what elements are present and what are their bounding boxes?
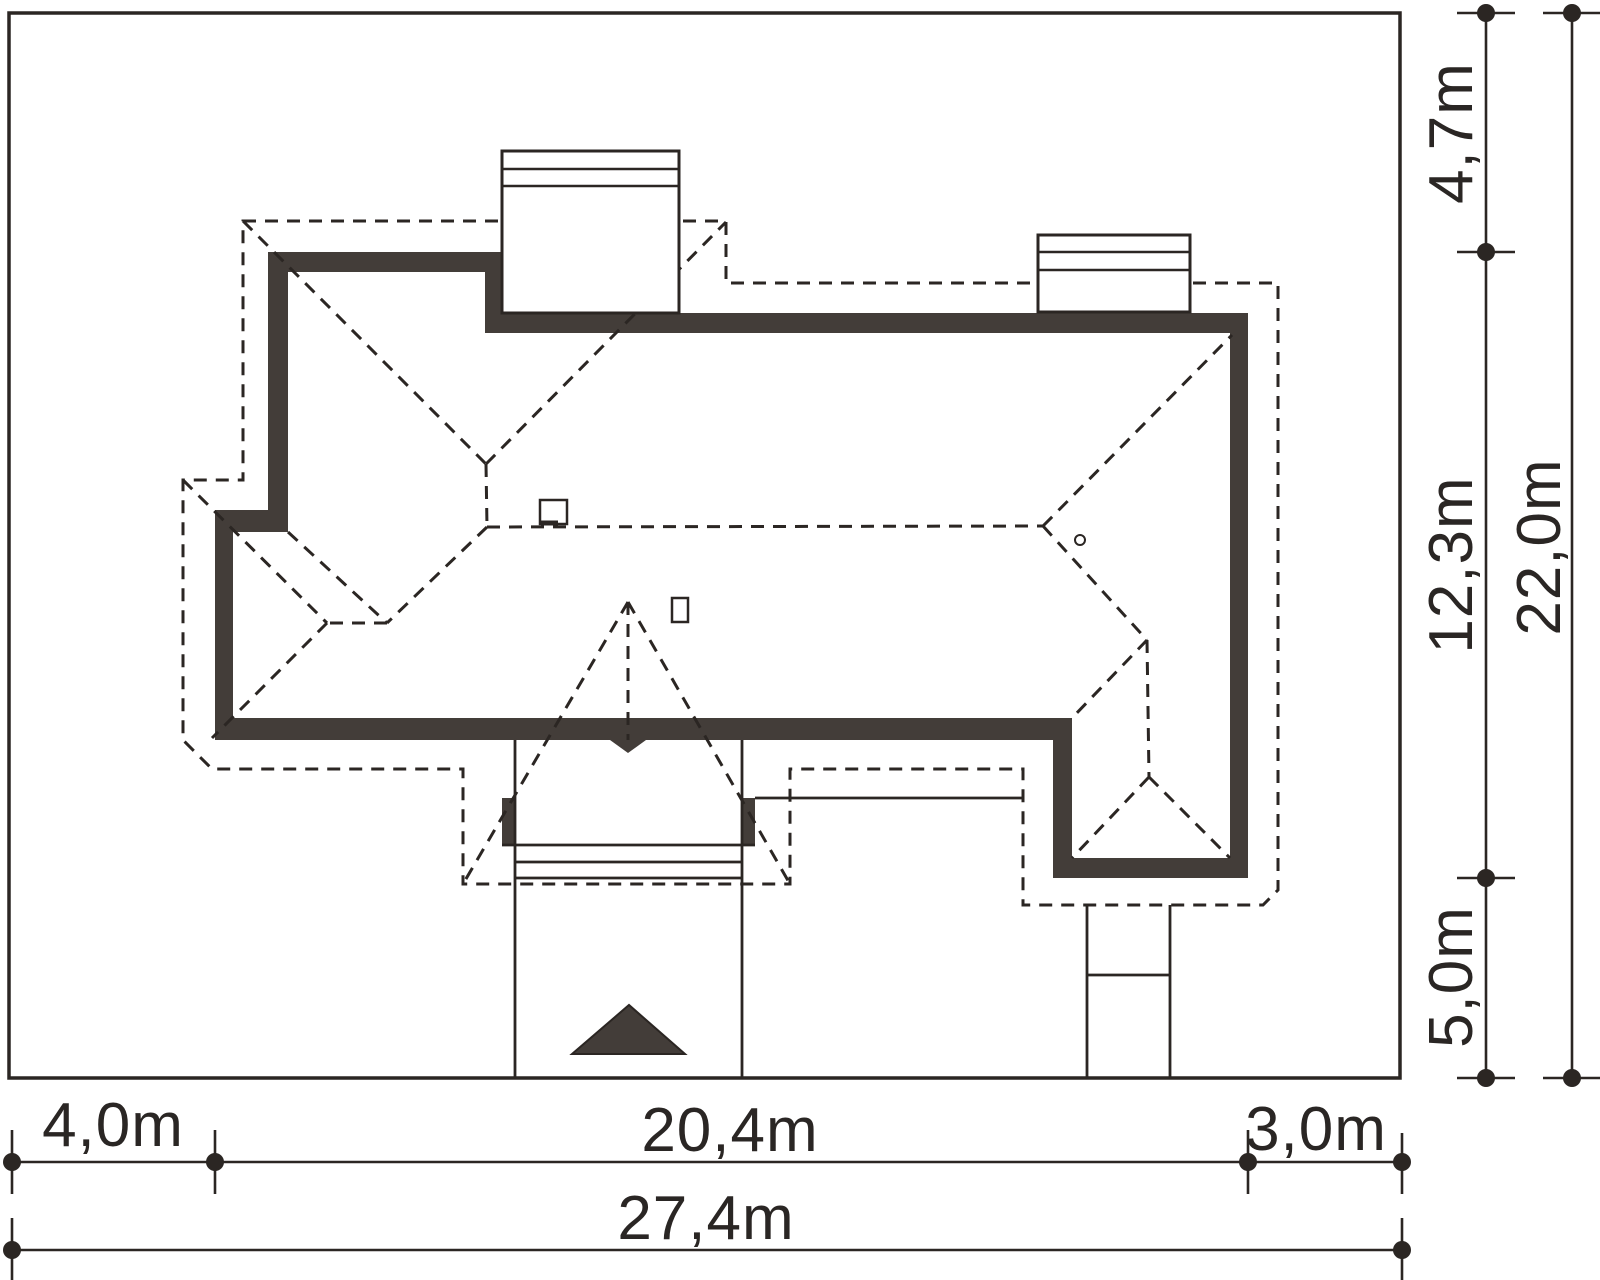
chimney-icon bbox=[502, 151, 679, 313]
dimension-label: 5,0m bbox=[1417, 906, 1486, 1048]
wall-terrace-left bbox=[1053, 718, 1072, 878]
dimension-label: 4,7m bbox=[1417, 62, 1486, 204]
porch-ridge-wall-notch bbox=[610, 740, 646, 753]
dimension-label: 20,4m bbox=[641, 1096, 818, 1165]
valley-east bbox=[1043, 526, 1147, 640]
ridge-terrace bbox=[1147, 640, 1149, 777]
roof-plan-drawing: 4,0m 20,4m 3,0m 27,4m 4,7m 12,3m 5,0m 22… bbox=[0, 0, 1600, 1280]
wall-top-left bbox=[268, 252, 503, 272]
site-plan-canvas: 4,0m 20,4m 3,0m 27,4m 4,7m 12,3m 5,0m 22… bbox=[0, 0, 1600, 1280]
valley-terrace-nw bbox=[1072, 640, 1147, 718]
dimension-label: 12,3m bbox=[1417, 476, 1486, 653]
wall-top-main bbox=[485, 313, 1248, 333]
ridge-left-vertical bbox=[486, 464, 487, 527]
entrance-arrow-icon bbox=[572, 1005, 685, 1054]
porch-gable-left bbox=[463, 602, 628, 884]
wall-annex-left bbox=[215, 510, 233, 740]
hip-east-upper bbox=[1043, 335, 1232, 526]
dimension-label-total-width: 27,4m bbox=[617, 1184, 794, 1253]
roof-window-icon bbox=[672, 598, 688, 622]
wall-terrace-bottom bbox=[1053, 858, 1248, 878]
chimney-icon bbox=[1038, 235, 1190, 312]
porch-pillar-left bbox=[502, 798, 515, 845]
dimension-label: 3,0m bbox=[1245, 1095, 1387, 1164]
hip-terrace-se bbox=[1149, 777, 1230, 858]
dimension-label: 4,0m bbox=[42, 1091, 184, 1160]
roof-vent-icon bbox=[1075, 535, 1085, 545]
roof-symbols bbox=[540, 500, 1085, 1054]
hip-annex-nw bbox=[183, 480, 327, 623]
roof-window-icon bbox=[540, 500, 567, 524]
hip-annex-inner bbox=[288, 532, 387, 623]
dimension-label-total-depth: 22,0m bbox=[1505, 458, 1574, 635]
wall-right bbox=[1230, 313, 1248, 878]
porch-gable-right bbox=[628, 602, 790, 884]
dimension-labels: 4,0m 20,4m 3,0m 27,4m 4,7m 12,3m 5,0m 22… bbox=[42, 62, 1574, 1253]
chimneys bbox=[502, 151, 1190, 313]
wall-left-main bbox=[268, 252, 288, 532]
wall-bottom-main bbox=[215, 718, 1072, 740]
hip-terrace-sw bbox=[1072, 777, 1149, 858]
ridge-main bbox=[487, 526, 1043, 527]
valley-left bbox=[387, 527, 487, 623]
